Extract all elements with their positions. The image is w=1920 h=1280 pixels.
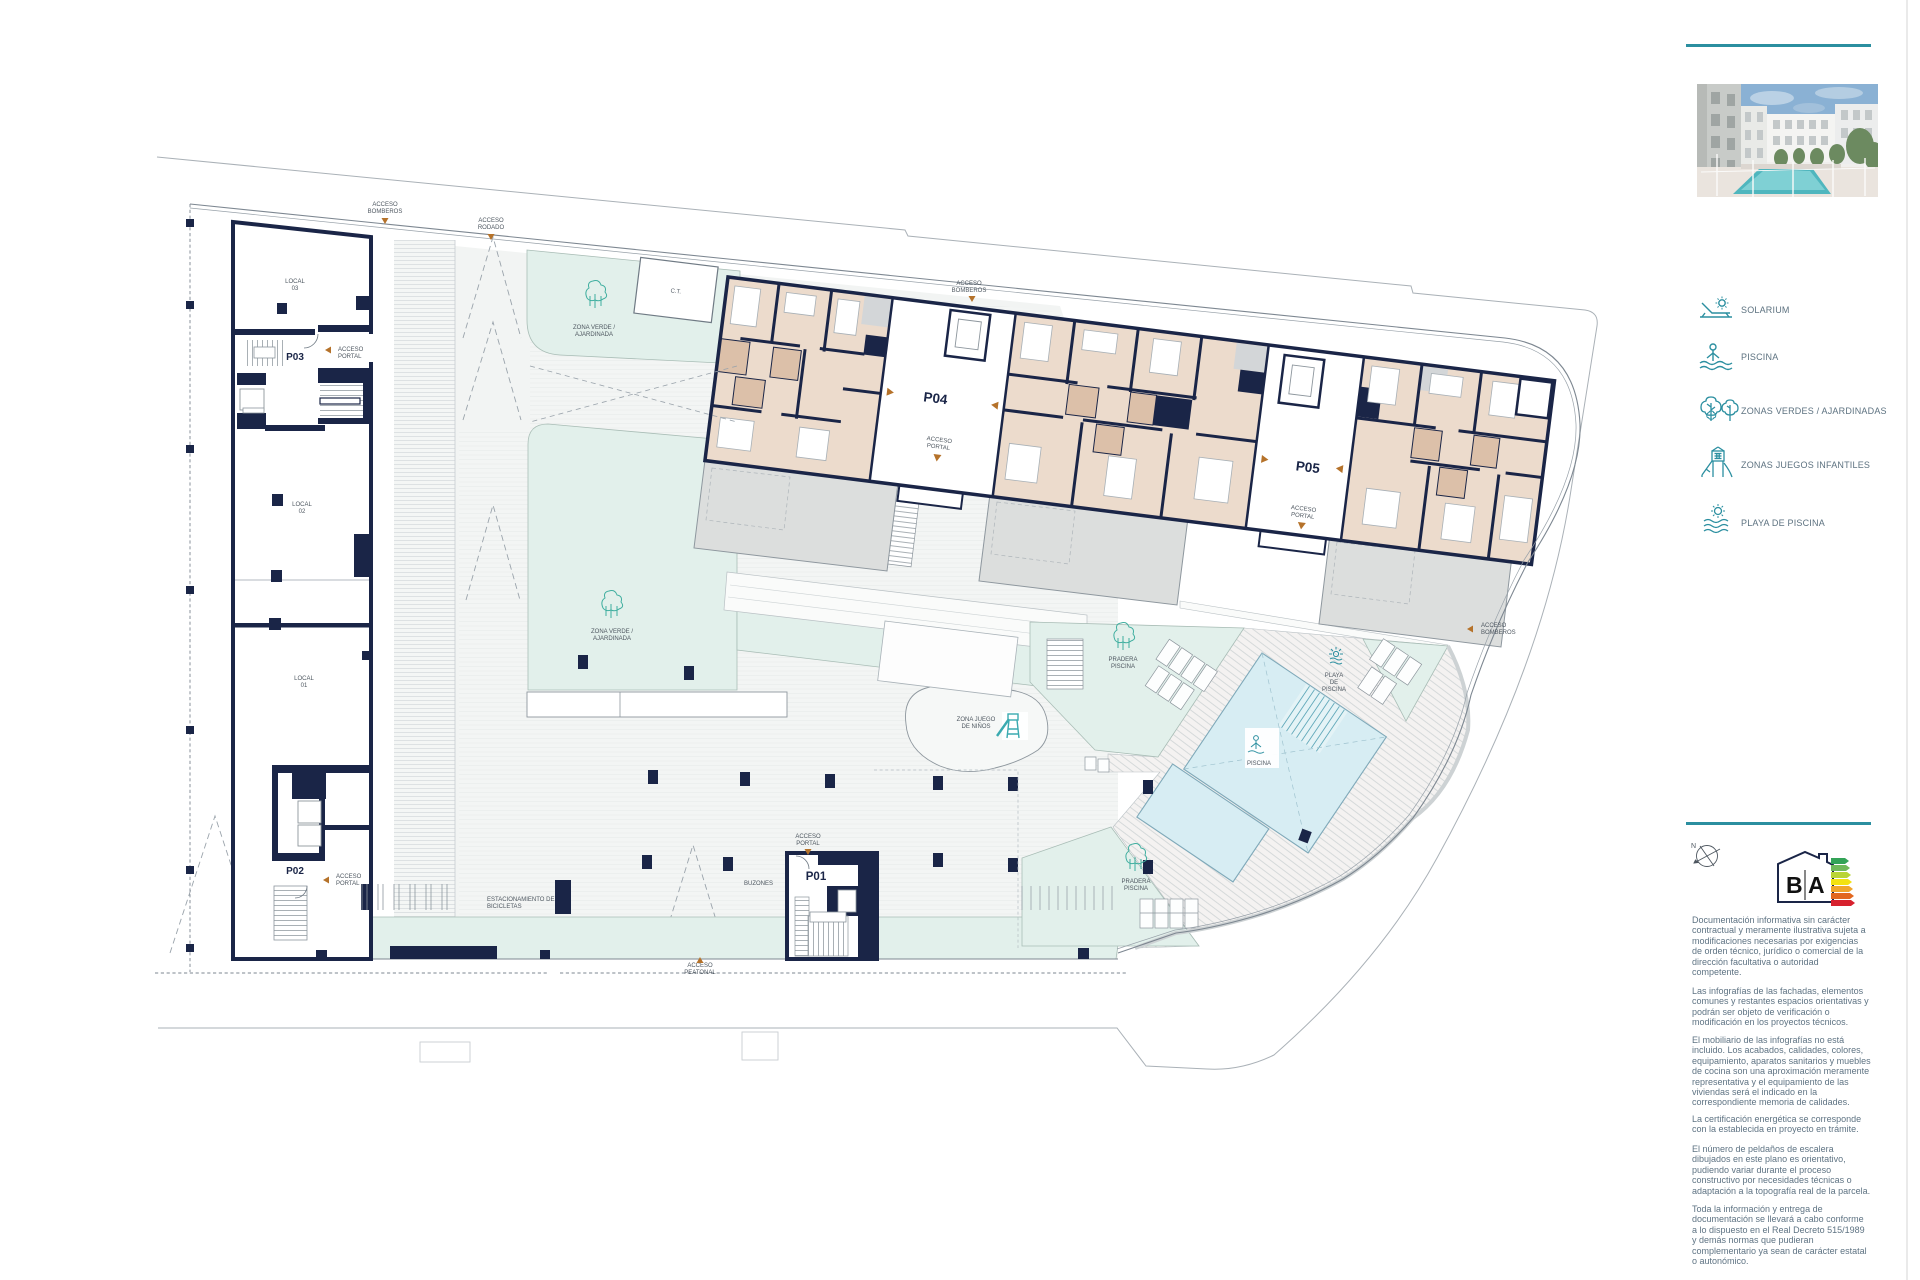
svg-text:N: N (1691, 843, 1696, 850)
svg-text:PRADERA: PRADERA (1108, 657, 1137, 663)
svg-text:P04: P04 (923, 389, 949, 407)
svg-text:ZONA VERDE /: ZONA VERDE / (591, 629, 633, 635)
svg-text:ACCESO: ACCESO (956, 281, 982, 287)
svg-text:ESTACIONAMIENTO DE: ESTACIONAMIENTO DE (487, 897, 554, 903)
svg-text:PISCINA: PISCINA (1111, 664, 1135, 670)
svg-text:ACCESO: ACCESO (1481, 623, 1507, 629)
svg-text:LOCAL: LOCAL (292, 502, 312, 508)
svg-text:03: 03 (292, 286, 299, 292)
svg-text:DE NIÑOS: DE NIÑOS (961, 723, 990, 730)
svg-text:ACCESO: ACCESO (372, 202, 398, 208)
svg-text:LOCAL: LOCAL (285, 279, 305, 285)
svg-text:A: A (1808, 872, 1825, 898)
svg-text:B: B (1786, 872, 1803, 898)
svg-text:P05: P05 (1295, 458, 1321, 476)
svg-text:P03: P03 (286, 352, 304, 363)
svg-text:BOMBEROS: BOMBEROS (1481, 630, 1516, 636)
svg-text:PRADERA: PRADERA (1121, 879, 1150, 885)
svg-text:PORTAL: PORTAL (796, 841, 820, 847)
svg-text:ACCESO: ACCESO (478, 218, 504, 224)
svg-text:ZONA JUEGO: ZONA JUEGO (957, 717, 996, 723)
svg-text:ZONA VERDE /: ZONA VERDE / (573, 325, 615, 331)
svg-text:P01: P01 (806, 871, 827, 883)
svg-text:RODADO: RODADO (478, 225, 505, 231)
svg-text:LOCAL: LOCAL (294, 676, 314, 682)
svg-text:ACCESO: ACCESO (338, 347, 364, 353)
svg-text:BOMBEROS: BOMBEROS (952, 288, 987, 294)
svg-text:PEATONAL: PEATONAL (684, 970, 716, 976)
svg-text:02: 02 (299, 509, 306, 515)
svg-text:BUZONES: BUZONES (744, 881, 773, 887)
svg-text:PISCINA: PISCINA (1124, 886, 1148, 892)
svg-text:AJARDINADA: AJARDINADA (593, 636, 631, 642)
svg-text:BICICLETAS: BICICLETAS (487, 904, 522, 910)
svg-text:BOMBEROS: BOMBEROS (368, 209, 403, 215)
svg-text:PLAYA: PLAYA (1325, 673, 1343, 679)
svg-text:AJARDINADA: AJARDINADA (575, 332, 613, 338)
svg-text:PISCINA: PISCINA (1247, 761, 1271, 767)
svg-text:PORTAL: PORTAL (338, 354, 362, 360)
svg-text:P02: P02 (286, 866, 304, 877)
svg-text:PORTAL: PORTAL (336, 881, 360, 887)
svg-text:01: 01 (301, 683, 308, 689)
svg-text:ACCESO: ACCESO (336, 874, 362, 880)
svg-text:ACCESO: ACCESO (795, 834, 821, 840)
svg-text:DE: DE (1330, 680, 1338, 686)
svg-text:PISCINA: PISCINA (1322, 687, 1346, 693)
svg-text:ACCESO: ACCESO (687, 963, 713, 969)
